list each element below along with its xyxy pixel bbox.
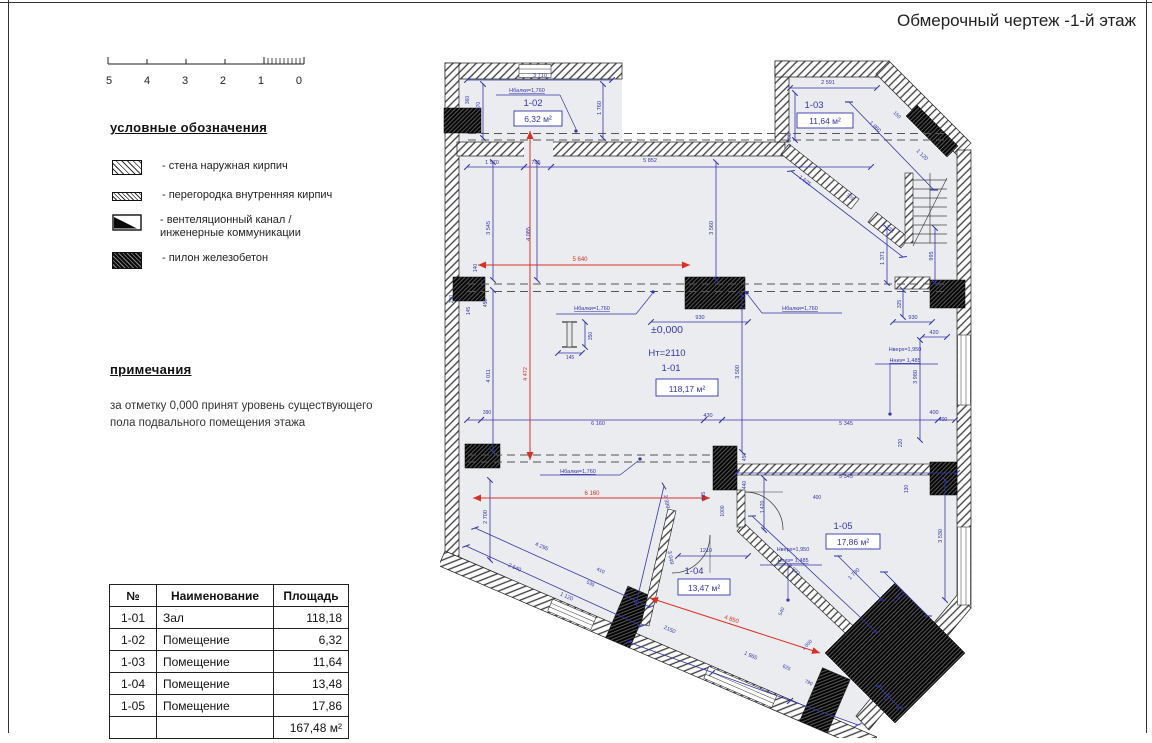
legend-item-label: - перегородка внутренняя кирпич bbox=[162, 189, 332, 202]
room-number: 1-03 bbox=[804, 100, 823, 111]
dimension-label: 145 bbox=[466, 307, 472, 316]
dimension-label: 325 bbox=[897, 300, 903, 309]
table-cell: Помещение bbox=[157, 673, 274, 695]
room-area: 17,86 м² bbox=[837, 537, 869, 547]
scale-number: 4 bbox=[144, 75, 150, 87]
table-cell: Зал bbox=[157, 607, 274, 629]
page-title: Обмерочный чертеж -1-й этаж bbox=[897, 11, 1136, 31]
dimension-label: 6 160 bbox=[584, 491, 600, 497]
level-annotation: ±0,000 bbox=[651, 324, 683, 336]
room-area: 13,47 м² bbox=[688, 583, 720, 593]
table-cell bbox=[157, 717, 274, 739]
dimension-label: 4 011 bbox=[486, 369, 492, 382]
dimension-label: 400 bbox=[939, 417, 948, 423]
floor-plan-svg: 3 710Нбалки=1,7603609701 7601 5707055 85… bbox=[440, 48, 1040, 738]
dimension-label: 360 bbox=[465, 96, 471, 105]
table-cell: Помещение bbox=[157, 651, 274, 673]
table-header-row: № Наименование Площадь bbox=[110, 585, 349, 607]
scale-number: 5 bbox=[106, 75, 112, 87]
drawing-sheet: { "title": "Обмерочный чертеж -1-й этаж"… bbox=[0, 0, 1152, 733]
dimension-label: 970 bbox=[476, 102, 482, 111]
dimension-label: 350 bbox=[588, 332, 594, 341]
notes-line: за отметку 0,000 принят уровень существу… bbox=[110, 398, 380, 415]
dimension-label: 6 160 bbox=[591, 421, 605, 427]
dimension-label: Нбалки=1,760 bbox=[574, 306, 610, 312]
exterior-wall-swatch-icon bbox=[112, 160, 142, 175]
scale-bar-ruler bbox=[106, 54, 306, 68]
dimension-label: 995 bbox=[929, 251, 935, 260]
scale-number: 1 bbox=[258, 75, 264, 87]
table-row: 1-04Помещение13,48 bbox=[110, 673, 349, 695]
room-number: 1-05 bbox=[833, 521, 852, 532]
dimension-label: 5 852 bbox=[643, 158, 657, 164]
scale-bar-numbers: 5 4 3 2 1 0 bbox=[106, 75, 302, 87]
col-area: Площадь bbox=[274, 585, 349, 607]
table-cell: 118,18 bbox=[274, 607, 349, 629]
level-annotation: Hт=2110 bbox=[648, 348, 685, 359]
table-cell: 6,32 bbox=[274, 629, 349, 651]
table-cell: 17,86 bbox=[274, 695, 349, 717]
table-cell bbox=[110, 717, 157, 739]
dimension-label: 145 bbox=[566, 355, 575, 361]
dimension-label: 4 085 bbox=[526, 227, 532, 241]
dimension-label: 420 bbox=[929, 330, 938, 336]
scale-number: 2 bbox=[220, 75, 226, 87]
dimension-label: Нбалки=1,760 bbox=[509, 88, 545, 94]
dimension-label: 1000 bbox=[720, 505, 726, 516]
dimension-label: 705 bbox=[531, 160, 540, 166]
dimension-label: 3 710 bbox=[533, 73, 547, 79]
sheet-border-right bbox=[1146, 0, 1147, 733]
room-number: 1-01 bbox=[661, 363, 680, 374]
dimension-label: Нбалки=1,760 bbox=[782, 306, 818, 312]
room-area: 11,64 м² bbox=[809, 116, 841, 126]
table-cell: Помещение bbox=[157, 695, 274, 717]
dimension-label: 2 700 bbox=[483, 510, 489, 524]
dimension-label: 440 bbox=[742, 481, 748, 490]
dimension-label: 1 906 bbox=[787, 133, 793, 147]
table-cell: 11,64 bbox=[274, 651, 349, 673]
dimension-label: 3 545 bbox=[486, 221, 492, 235]
dimension-label: 5 640 bbox=[572, 257, 588, 263]
dimension-label: Нверх=1,950 bbox=[777, 547, 810, 553]
table-cell: 1-05 bbox=[110, 695, 157, 717]
notes-text: за отметку 0,000 принят уровень существу… bbox=[110, 398, 380, 432]
dimension-label: 5 345 bbox=[839, 474, 853, 480]
table-cell: 167,48 м² bbox=[274, 717, 349, 739]
table-cell: 1-03 bbox=[110, 651, 157, 673]
col-name: Наименование bbox=[157, 585, 274, 607]
dimension-label: 430 bbox=[703, 413, 712, 419]
table-total-row: 167,48 м² bbox=[110, 717, 349, 739]
notes-line: пола подвального помещения этажа bbox=[110, 415, 380, 432]
legend-title: условные обозначения bbox=[110, 120, 267, 135]
legend-item-label: - вентеляционный канал / инженерные комм… bbox=[160, 214, 350, 240]
sheet-border-left bbox=[8, 0, 9, 733]
dimension-label: 3 980 bbox=[913, 370, 919, 384]
dimension-label: 3 530 bbox=[938, 529, 944, 543]
dimension-label: 450 bbox=[483, 299, 489, 308]
table-cell: 13,48 bbox=[274, 673, 349, 695]
dimension-label: 3 560 bbox=[709, 221, 715, 235]
room-number: 1-02 bbox=[523, 98, 542, 109]
dimension-label: 130 bbox=[904, 485, 910, 494]
dimension-label: 390 bbox=[483, 410, 492, 416]
table-row: 1-02Помещение6,32 bbox=[110, 629, 349, 651]
room-area-table: № Наименование Площадь 1-01Зал118,181-02… bbox=[109, 584, 349, 739]
table-cell: 1-04 bbox=[110, 673, 157, 695]
area-table-body: 1-01Зал118,181-02Помещение6,321-03Помеще… bbox=[110, 607, 349, 739]
pylon-swatch-icon bbox=[112, 252, 142, 269]
legend-item-pylon: - пилон железобетон bbox=[112, 252, 268, 269]
dimension-label: 400 bbox=[813, 495, 822, 501]
dimension-label: 930 bbox=[695, 315, 704, 321]
dimension-label: 930 bbox=[908, 315, 917, 321]
table-cell: Помещение bbox=[157, 629, 274, 651]
dimension-label: Нбалки=1,760 bbox=[560, 469, 596, 475]
dimension-label: Нверх=1,950 bbox=[889, 347, 922, 353]
table-cell: 1-02 bbox=[110, 629, 157, 651]
dimension-label: 1 420 bbox=[760, 501, 766, 514]
dimension-label: 400 bbox=[929, 410, 938, 416]
dimension-label: Нниз= 1,485 bbox=[889, 358, 920, 364]
dimension-label: 140 bbox=[473, 264, 479, 273]
partition-swatch-icon bbox=[112, 192, 142, 201]
legend-item-label: - стена наружная кирпич bbox=[162, 160, 288, 173]
dimension-label: Нниз= 1,485 bbox=[777, 558, 808, 564]
table-row: 1-05Помещение17,86 bbox=[110, 695, 349, 717]
dimension-label: 1 760 bbox=[597, 101, 603, 115]
legend-item-exterior-wall: - стена наружная кирпич bbox=[112, 160, 288, 175]
dimension-label: 4 472 bbox=[523, 367, 529, 381]
dimension-label: 290 bbox=[449, 295, 455, 304]
scale-number: 0 bbox=[296, 75, 302, 87]
table-cell: 1-01 bbox=[110, 607, 157, 629]
legend-item-label: - пилон железобетон bbox=[162, 252, 268, 265]
vent-duct-swatch-icon bbox=[112, 214, 142, 231]
legend-item-vent-duct: - вентеляционный канал / инженерные комм… bbox=[112, 214, 350, 240]
sheet-border-top bbox=[0, 2, 1152, 3]
dimension-label: 5 345 bbox=[839, 421, 853, 427]
dimension-label: 365 bbox=[701, 492, 707, 501]
dimension-label: 1 371 bbox=[880, 251, 886, 265]
table-row: 1-01Зал118,18 bbox=[110, 607, 349, 629]
dimension-label: 220 bbox=[898, 439, 904, 448]
room-area: 118,17 м² bbox=[669, 384, 706, 394]
dimension-label: 1210 bbox=[700, 548, 712, 554]
room-number: 1-04 bbox=[684, 566, 703, 577]
scale-number: 3 bbox=[182, 75, 188, 87]
legend-item-partition: - перегородка внутренняя кирпич bbox=[112, 189, 332, 202]
scale-bar: 5 4 3 2 1 0 bbox=[106, 54, 306, 87]
floor-plan: 3 710Нбалки=1,7603609701 7601 5707055 85… bbox=[440, 48, 1040, 743]
table-row: 1-03Помещение11,64 bbox=[110, 651, 349, 673]
dimension-label: 3 500 bbox=[735, 365, 741, 379]
col-number: № bbox=[110, 585, 157, 607]
notes-title: примечания bbox=[110, 362, 192, 377]
room-area: 6,32 м² bbox=[524, 114, 552, 124]
dimension-label: 2 591 bbox=[821, 80, 835, 86]
dimension-label: 1 570 bbox=[485, 160, 499, 166]
dimension-label: 450 bbox=[742, 453, 748, 462]
